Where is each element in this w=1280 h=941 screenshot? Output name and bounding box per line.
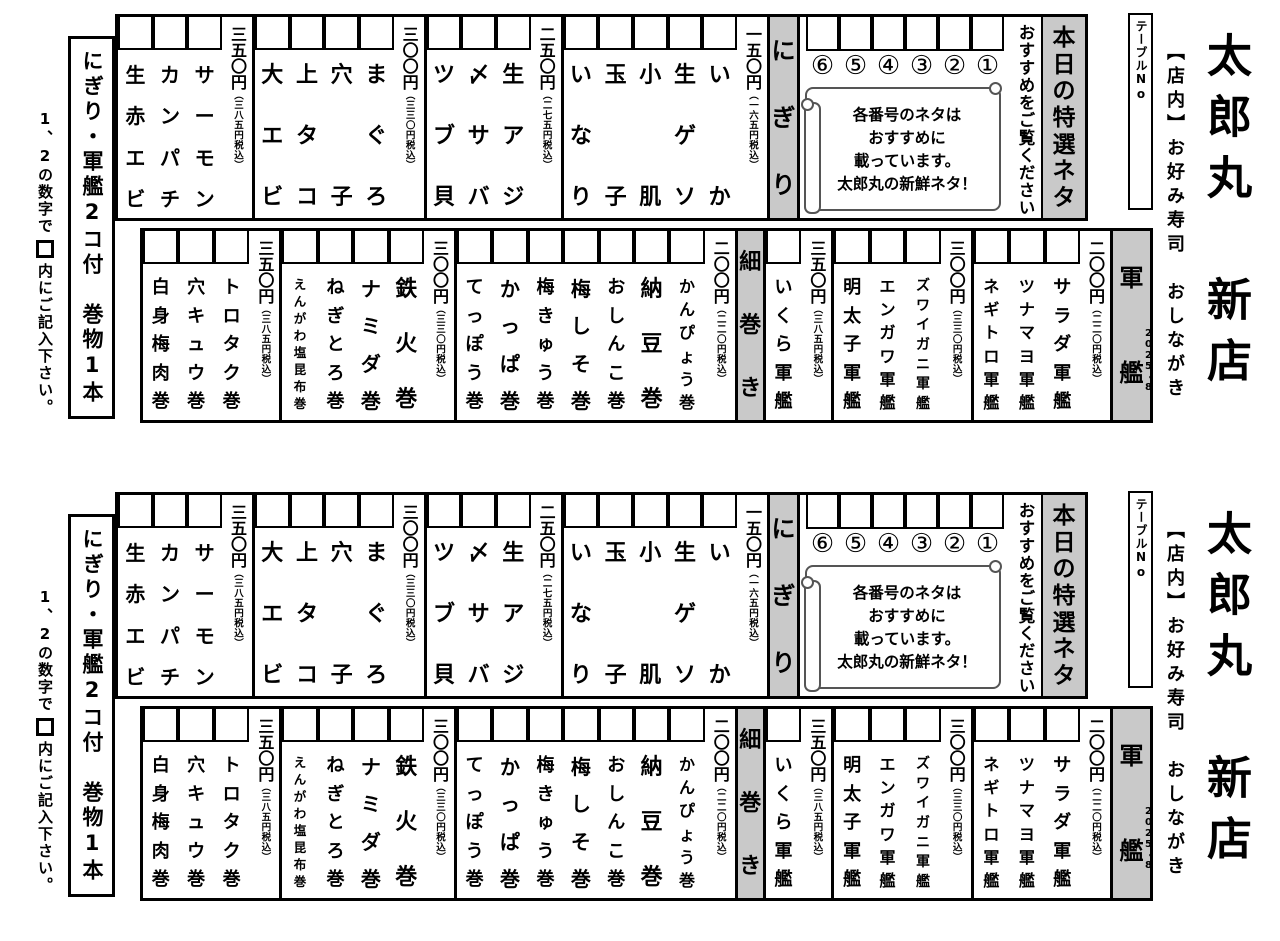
item-name: ツナマヨ軍艦 <box>1009 742 1044 898</box>
menu-item-column: 玉子 <box>598 495 633 696</box>
price-label: 二〇〇円（二二〇円税込） <box>705 231 735 420</box>
order-checkbox[interactable] <box>702 17 737 50</box>
price-label: 一五〇円（一六五円税込） <box>737 495 767 696</box>
menu-subtitle: 【店内】お好み寿司 おしながき <box>1156 42 1192 437</box>
menu-item-column: ツナマヨ軍艦 <box>1009 231 1044 420</box>
price-tax-included: （二七五円税込） <box>541 568 552 648</box>
item-name: 鉄火巻 <box>389 264 424 420</box>
item-name: トロタク巻 <box>214 264 249 420</box>
special-note: おすすめをご覧ください <box>1010 17 1041 218</box>
special-checkbox-row <box>800 495 1010 529</box>
special-number-row: ①②③④⑤⑥ <box>800 51 1010 81</box>
menu-item-column: 明太子軍艦 <box>834 709 869 898</box>
item-name: 玉子 <box>598 50 633 218</box>
item-name: 上タコ <box>290 50 325 218</box>
price-amount: 三五〇円 <box>228 504 247 568</box>
price-label: 三五〇円（三八五円税込） <box>222 495 252 696</box>
item-name: ねぎとろ巻 <box>318 742 353 898</box>
menu-item-column: 納豆巻 <box>634 709 669 898</box>
item-name: いか <box>702 50 737 218</box>
menu-item-column: いくら軍艦 <box>766 231 802 420</box>
price-group: 三〇〇円（三三〇円税込）まぐろ穴子上タコ大エビ <box>252 495 424 696</box>
order-checkbox[interactable] <box>143 709 178 742</box>
scroll-roll-icon <box>804 580 821 692</box>
entry-box-glyph <box>36 718 54 736</box>
menu-item-column: 白身梅肉巻 <box>143 709 178 898</box>
item-name: かっぱ巻 <box>492 264 527 420</box>
order-checkbox[interactable] <box>290 17 325 50</box>
item-name: 小肌 <box>633 528 668 696</box>
menu-item-column: トロタク巻 <box>214 231 249 420</box>
special-number-area: ①②③④⑤⑥ 各番号のネタは おすすめに 載っています。 太郎丸の新鮮ネタ！ <box>800 495 1010 696</box>
fill-instruction: 1、2の数字で内にご記入下さい。 <box>29 110 60 425</box>
order-checkbox[interactable] <box>974 709 1009 742</box>
item-name: 〆サバ <box>461 528 496 696</box>
special-number: ⑤ <box>839 531 872 557</box>
special-number-row: ①②③④⑤⑥ <box>800 529 1010 559</box>
menu-item-column: 大エビ <box>255 17 290 218</box>
order-checkbox[interactable] <box>214 709 249 742</box>
order-checkbox[interactable] <box>528 231 563 264</box>
price-amount: 三五〇円 <box>807 240 826 304</box>
menu-item-column: いなり <box>564 17 599 218</box>
menu-item-column: いくら軍艦 <box>766 709 802 898</box>
price-label: 三〇〇円（三三〇円税込） <box>941 709 971 898</box>
item-name: 〆サバ <box>461 50 496 218</box>
special-order-checkbox[interactable] <box>938 17 971 51</box>
item-name: トロタク巻 <box>214 742 249 898</box>
table-no-box[interactable]: テーブルNo <box>1128 491 1153 688</box>
item-name: ねぎとろ巻 <box>318 264 353 420</box>
order-checkbox[interactable] <box>153 495 188 528</box>
scroll-banner: 各番号のネタは おすすめに 載っています。 太郎丸の新鮮ネタ！ <box>805 87 1001 211</box>
fill-instruction-pre: 1、2の数字で <box>36 588 54 713</box>
order-checkbox[interactable] <box>870 231 905 264</box>
item-name: 小肌 <box>633 50 668 218</box>
price-label: 三五〇円（三八五円税込） <box>801 231 831 420</box>
special-number-area: ①②③④⑤⑥ 各番号のネタは おすすめに 載っています。 太郎丸の新鮮ネタ！ <box>800 17 1010 218</box>
item-name: えんがわ塩昆布巻 <box>282 742 317 898</box>
menu-subtitle: 【店内】お好み寿司 おしながき <box>1156 520 1192 915</box>
price-group: 三〇〇円（三三〇円税込）まぐろ穴子上タコ大エビ <box>252 17 424 218</box>
order-checkbox[interactable] <box>290 495 325 528</box>
special-order-checkbox[interactable] <box>971 495 1004 529</box>
order-checkbox[interactable] <box>834 231 869 264</box>
scroll-dot-left-icon <box>801 576 814 589</box>
item-name: ツナマヨ軍艦 <box>1009 264 1044 420</box>
item-name: 梅しそ巻 <box>563 264 598 420</box>
item-name: エンガワ軍艦 <box>870 742 905 898</box>
order-checkbox[interactable] <box>457 231 492 264</box>
menu-item-column: 上タコ <box>290 495 325 696</box>
order-checkbox[interactable] <box>389 231 424 264</box>
item-name: まぐろ <box>359 50 394 218</box>
special-order-checkbox[interactable] <box>971 17 1004 51</box>
item-name: エンガワ軍艦 <box>870 264 905 420</box>
price-amount: 三〇〇円 <box>400 504 419 568</box>
item-name: 穴子 <box>324 528 359 696</box>
gunkan-hosomaki-row: 軍艦 二〇〇円（二二〇円税込）サラダ軍艦ツナマヨ軍艦ネギトロ軍艦三〇〇円（三三〇… <box>140 706 1153 901</box>
price-amount: 三〇〇円 <box>400 26 419 90</box>
item-name: おしんこ巻 <box>599 742 634 898</box>
order-checkbox[interactable] <box>282 709 317 742</box>
order-checkbox[interactable] <box>187 17 222 50</box>
menu-item-column: カンパチ <box>153 495 188 696</box>
set-description-label: にぎり・軍艦2コ付 巻物1本 <box>68 36 115 419</box>
price-label: 三〇〇円（三三〇円税込） <box>424 231 454 420</box>
menu-item-column: ネギトロ軍艦 <box>974 709 1009 898</box>
order-checkbox[interactable] <box>668 495 703 528</box>
order-checkbox[interactable] <box>598 17 633 50</box>
order-sheet: 1、2の数字で内にご記入下さい。 にぎり・軍艦2コ付 巻物1本 本日の特選ネタ … <box>0 10 1280 463</box>
order-checkbox[interactable] <box>143 231 178 264</box>
special-number: ① <box>971 53 1004 79</box>
order-checkbox[interactable] <box>766 231 802 264</box>
order-checkbox[interactable] <box>563 709 598 742</box>
price-tax-included: （三八五円税込） <box>232 568 243 648</box>
order-checkbox[interactable] <box>634 709 669 742</box>
order-checkbox[interactable] <box>255 17 290 50</box>
order-checkbox[interactable] <box>359 495 394 528</box>
item-name: かんぴょう巻 <box>669 742 704 898</box>
order-checkbox[interactable] <box>1045 231 1080 264</box>
menu-item-column: かっぱ巻 <box>492 231 527 420</box>
menu-item-column: 梅しそ巻 <box>563 231 598 420</box>
price-tax-included: （二二〇円税込） <box>1090 304 1101 384</box>
table-no-box[interactable]: テーブルNo <box>1128 13 1153 210</box>
menu-item-column: ナミダ巻 <box>353 231 388 420</box>
price-group: 三五〇円（三八五円税込）いくら軍艦 <box>766 231 832 420</box>
scroll-line: 各番号のネタは <box>823 103 991 126</box>
edition-date: 2025・8 <box>1142 806 1154 871</box>
gunkan-hosomaki-row: 軍艦 二〇〇円（二二〇円税込）サラダ軍艦ツナマヨ軍艦ネギトロ軍艦三〇〇円（三三〇… <box>140 228 1153 423</box>
special-order-checkbox[interactable] <box>872 17 905 51</box>
item-name: かんぴょう巻 <box>669 264 704 420</box>
price-tax-included: （一六五円税込） <box>747 90 758 170</box>
scroll-line: 太郎丸の新鮮ネタ！ <box>823 650 991 673</box>
price-amount: 三〇〇円 <box>430 718 449 782</box>
special-number: ④ <box>872 53 905 79</box>
special-order-checkbox[interactable] <box>806 495 839 529</box>
menu-item-column: トロタク巻 <box>214 709 249 898</box>
special-number: ⑥ <box>806 53 839 79</box>
order-checkbox[interactable] <box>255 495 290 528</box>
order-checkbox[interactable] <box>1009 709 1044 742</box>
order-checkbox[interactable] <box>563 231 598 264</box>
scroll-roll-icon <box>804 102 821 214</box>
order-checkbox[interactable] <box>318 709 353 742</box>
menu-item-column: 梅きゅう巻 <box>528 709 563 898</box>
price-amount: 一五〇円 <box>743 504 762 568</box>
price-group: 三五〇円（三八五円税込）いくら軍艦 <box>766 709 832 898</box>
order-checkbox[interactable] <box>492 709 527 742</box>
menu-item-column: 穴子 <box>324 17 359 218</box>
item-name: 玉子 <box>598 528 633 696</box>
item-name: カンパチ <box>153 50 188 218</box>
menu-item-column: 穴キュウ巻 <box>178 231 213 420</box>
fill-instruction-post: 内にご記入下さい。 <box>36 741 54 894</box>
menu-item-column: ねぎとろ巻 <box>318 231 353 420</box>
order-checkbox[interactable] <box>427 17 462 50</box>
price-tax-included: （三三〇円税込） <box>404 90 415 170</box>
item-name: かっぱ巻 <box>492 742 527 898</box>
order-checkbox[interactable] <box>324 17 359 50</box>
item-name: えんがわ塩昆布巻 <box>282 264 317 420</box>
menu-item-column: サラダ軍艦 <box>1045 231 1080 420</box>
item-name: 梅きゅう巻 <box>528 264 563 420</box>
special-number: ② <box>938 531 971 557</box>
menu-item-column: 明太子軍艦 <box>834 231 869 420</box>
order-checkbox[interactable] <box>564 17 599 50</box>
menu-item-column: エンガワ軍艦 <box>870 709 905 898</box>
order-checkbox[interactable] <box>153 17 188 50</box>
order-checkbox[interactable] <box>324 495 359 528</box>
hosomaki-header: 細巻き <box>735 709 766 898</box>
menu-item-column: ズワイガニ軍艦 <box>905 231 940 420</box>
item-name: ツブ貝 <box>427 528 462 696</box>
order-checkbox[interactable] <box>598 495 633 528</box>
scroll-message: 各番号のネタは おすすめに 載っています。 太郎丸の新鮮ネタ！ <box>823 569 991 685</box>
price-amount: 三〇〇円 <box>947 718 966 782</box>
menu-item-column: てっぽう巻 <box>457 231 492 420</box>
scroll-line: 各番号のネタは <box>823 581 991 604</box>
scroll-dot-left-icon <box>801 98 814 111</box>
order-checkbox[interactable] <box>187 495 222 528</box>
price-tax-included: （三三〇円税込） <box>434 782 445 862</box>
special-order-checkbox[interactable] <box>938 495 971 529</box>
menu-item-column: 生赤エビ <box>118 495 153 696</box>
price-amount: 二〇〇円 <box>711 240 730 304</box>
order-checkbox[interactable] <box>669 709 704 742</box>
fill-instruction: 1、2の数字で内にご記入下さい。 <box>29 588 60 903</box>
order-checkbox[interactable] <box>461 17 496 50</box>
order-checkbox[interactable] <box>389 709 424 742</box>
menu-item-column: 玉子 <box>598 17 633 218</box>
menu-item-column: まぐろ <box>359 495 394 696</box>
order-checkbox[interactable] <box>318 231 353 264</box>
item-name: 生赤エビ <box>118 528 153 696</box>
menu-item-column: 穴子 <box>324 495 359 696</box>
special-order-checkbox[interactable] <box>806 17 839 51</box>
price-tax-included: （三三〇円税込） <box>404 568 415 648</box>
order-checkbox[interactable] <box>282 231 317 264</box>
price-label: 三〇〇円（三三〇円税込） <box>424 709 454 898</box>
special-number: ④ <box>872 531 905 557</box>
special-order-checkbox[interactable] <box>905 495 938 529</box>
order-checkbox[interactable] <box>834 709 869 742</box>
order-checkbox[interactable] <box>599 709 634 742</box>
order-checkbox[interactable] <box>870 709 905 742</box>
price-group: 三五〇円（三八五円税込）トロタク巻穴キュウ巻白身梅肉巻 <box>143 709 279 898</box>
menu-item-column: ネギトロ軍艦 <box>974 231 1009 420</box>
menu-item-column: えんがわ塩昆布巻 <box>282 709 317 898</box>
order-checkbox[interactable] <box>633 17 668 50</box>
item-name: てっぽう巻 <box>457 264 492 420</box>
menu-item-column: ツナマヨ軍艦 <box>1009 709 1044 898</box>
price-group: 二〇〇円（二二〇円税込）サラダ軍艦ツナマヨ軍艦ネギトロ軍艦 <box>971 709 1110 898</box>
special-header: 本日の特選ネタ <box>1041 495 1085 696</box>
item-name: 生赤エビ <box>118 50 153 218</box>
price-amount: 三〇〇円 <box>947 240 966 304</box>
special-order-checkbox[interactable] <box>872 495 905 529</box>
price-tax-included: （三八五円税込） <box>259 782 270 862</box>
special-order-checkbox[interactable] <box>905 17 938 51</box>
menu-item-column: おしんこ巻 <box>599 709 634 898</box>
menu-item-column: 梅しそ巻 <box>563 709 598 898</box>
menu-item-column: まぐろ <box>359 17 394 218</box>
order-checkbox[interactable] <box>634 231 669 264</box>
order-checkbox[interactable] <box>905 231 940 264</box>
item-name: まぐろ <box>359 528 394 696</box>
order-checkbox[interactable] <box>178 231 213 264</box>
price-label: 三〇〇円（三三〇円税込） <box>394 17 424 218</box>
item-name: 生アジ <box>496 528 531 696</box>
fill-instruction-pre: 1、2の数字で <box>36 110 54 235</box>
order-checkbox[interactable] <box>668 17 703 50</box>
order-checkbox[interactable] <box>633 495 668 528</box>
price-label: 三〇〇円（三三〇円税込） <box>941 231 971 420</box>
price-tax-included: （三八五円税込） <box>811 782 822 862</box>
special-note: おすすめをご覧ください <box>1010 495 1041 696</box>
price-label: 二〇〇円（二二〇円税込） <box>1080 231 1110 420</box>
order-checkbox[interactable] <box>669 231 704 264</box>
order-checkbox[interactable] <box>118 495 153 528</box>
price-group: 二五〇円（二七五円税込）生アジ〆サバツブ貝 <box>424 17 561 218</box>
order-checkbox[interactable] <box>457 709 492 742</box>
order-checkbox[interactable] <box>178 709 213 742</box>
item-name: 穴キュウ巻 <box>178 742 213 898</box>
item-name: 生ゲソ <box>668 528 703 696</box>
order-checkbox[interactable] <box>1045 709 1080 742</box>
item-name: 白身梅肉巻 <box>143 264 178 420</box>
hosomaki-header: 細巻き <box>735 231 766 420</box>
item-name: おしんこ巻 <box>599 264 634 420</box>
item-name: 納豆巻 <box>634 264 669 420</box>
price-label: 三五〇円（三八五円税込） <box>249 231 279 420</box>
order-checkbox[interactable] <box>702 495 737 528</box>
item-name: 穴子 <box>324 50 359 218</box>
item-name: 納豆巻 <box>634 742 669 898</box>
menu-item-column: てっぽう巻 <box>457 709 492 898</box>
fill-instruction-post: 内にご記入下さい。 <box>36 263 54 416</box>
nigiri-header: にぎり <box>767 495 800 696</box>
item-name: 鉄火巻 <box>389 742 424 898</box>
order-checkbox[interactable] <box>564 495 599 528</box>
order-checkbox[interactable] <box>492 231 527 264</box>
special-order-checkbox[interactable] <box>839 495 872 529</box>
menu-item-column: 生ゲソ <box>668 17 703 218</box>
order-checkbox[interactable] <box>353 709 388 742</box>
price-label: 二五〇円（二七五円税込） <box>531 495 561 696</box>
order-checkbox[interactable] <box>496 17 531 50</box>
order-sheet: 1、2の数字で内にご記入下さい。 にぎり・軍艦2コ付 巻物1本 本日の特選ネタ … <box>0 488 1280 941</box>
price-amount: 一五〇円 <box>743 26 762 90</box>
menu-item-column: 生アジ <box>496 17 531 218</box>
menu-item-column: いなり <box>564 495 599 696</box>
price-amount: 二〇〇円 <box>711 718 730 782</box>
menu-item-column: 生赤エビ <box>118 17 153 218</box>
menu-item-column: 小肌 <box>633 495 668 696</box>
item-name: ツブ貝 <box>427 50 462 218</box>
price-amount: 二〇〇円 <box>1086 718 1105 782</box>
special-order-checkbox[interactable] <box>839 17 872 51</box>
menu-item-column: 梅きゅう巻 <box>528 231 563 420</box>
item-name: いなり <box>564 528 599 696</box>
menu-item-column: 上タコ <box>290 17 325 218</box>
menu-item-column: サーモン <box>187 17 222 218</box>
price-tax-included: （三八五円税込） <box>811 304 822 384</box>
item-name: ズワイガニ軍艦 <box>905 264 940 420</box>
price-label: 三五〇円（三八五円税込） <box>249 709 279 898</box>
item-name: 明太子軍艦 <box>834 742 869 898</box>
order-checkbox[interactable] <box>528 709 563 742</box>
price-tax-included: （二二〇円税込） <box>1090 782 1101 862</box>
order-checkbox[interactable] <box>214 231 249 264</box>
price-group: 三〇〇円（三三〇円税込）ズワイガニ軍艦エンガワ軍艦明太子軍艦 <box>831 231 970 420</box>
order-checkbox[interactable] <box>461 495 496 528</box>
scroll-banner: 各番号のネタは おすすめに 載っています。 太郎丸の新鮮ネタ！ <box>805 565 1001 689</box>
order-checkbox[interactable] <box>118 17 153 50</box>
price-group: 三〇〇円（三三〇円税込）鉄火巻ナミダ巻ねぎとろ巻えんがわ塩昆布巻 <box>279 231 454 420</box>
price-tax-included: （一六五円税込） <box>747 568 758 648</box>
special-number: ⑥ <box>806 531 839 557</box>
item-name: 上タコ <box>290 528 325 696</box>
order-checkbox[interactable] <box>427 495 462 528</box>
menu-item-column: 生ゲソ <box>668 495 703 696</box>
menu-item-column: ツブ貝 <box>427 495 462 696</box>
menu-item-column: 大エビ <box>255 495 290 696</box>
menu-item-column: サラダ軍艦 <box>1045 709 1080 898</box>
order-checkbox[interactable] <box>974 231 1009 264</box>
menu-item-column: ナミダ巻 <box>353 709 388 898</box>
item-name: ナミダ巻 <box>353 742 388 898</box>
order-checkbox[interactable] <box>359 17 394 50</box>
price-amount: 二五〇円 <box>537 504 556 568</box>
item-name: ナミダ巻 <box>353 264 388 420</box>
menu-item-column: 納豆巻 <box>634 231 669 420</box>
menu-item-column: 小肌 <box>633 17 668 218</box>
price-label: 一五〇円（一六五円税込） <box>737 17 767 218</box>
price-label: 三五〇円（三八五円税込） <box>801 709 831 898</box>
price-amount: 三五〇円 <box>255 718 274 782</box>
order-checkbox[interactable] <box>1009 231 1044 264</box>
order-checkbox[interactable] <box>496 495 531 528</box>
price-amount: 三〇〇円 <box>430 240 449 304</box>
price-group: 二五〇円（二七五円税込）生アジ〆サバツブ貝 <box>424 495 561 696</box>
item-name: サラダ軍艦 <box>1045 264 1080 420</box>
price-tax-included: （三三〇円税込） <box>951 304 962 384</box>
order-checkbox[interactable] <box>353 231 388 264</box>
order-checkbox[interactable] <box>905 709 940 742</box>
price-tax-included: （二二〇円税込） <box>715 304 726 384</box>
price-group: 一五〇円（一六五円税込）いか生ゲソ小肌玉子いなり <box>561 17 767 218</box>
price-tax-included: （三三〇円税込） <box>951 782 962 862</box>
price-amount: 二〇〇円 <box>1086 240 1105 304</box>
menu-item-column: かんぴょう巻 <box>669 709 704 898</box>
scroll-line: 載っています。 <box>823 627 991 650</box>
special-section: 本日の特選ネタ おすすめをご覧ください ①②③④⑤⑥ 各番号のネタは おすすめに… <box>800 17 1085 218</box>
menu-item-column: サーモン <box>187 495 222 696</box>
item-name: サーモン <box>187 50 222 218</box>
menu-item-column: 白身梅肉巻 <box>143 231 178 420</box>
item-name: 大エビ <box>255 528 290 696</box>
price-group: 二〇〇円（二二〇円税込）サラダ軍艦ツナマヨ軍艦ネギトロ軍艦 <box>971 231 1110 420</box>
order-checkbox[interactable] <box>766 709 802 742</box>
menu-item-column: ツブ貝 <box>427 17 462 218</box>
price-group: 三五〇円（三八五円税込）サーモンカンパチ生赤エビ <box>118 17 252 218</box>
special-number: ① <box>971 531 1004 557</box>
order-checkbox[interactable] <box>599 231 634 264</box>
